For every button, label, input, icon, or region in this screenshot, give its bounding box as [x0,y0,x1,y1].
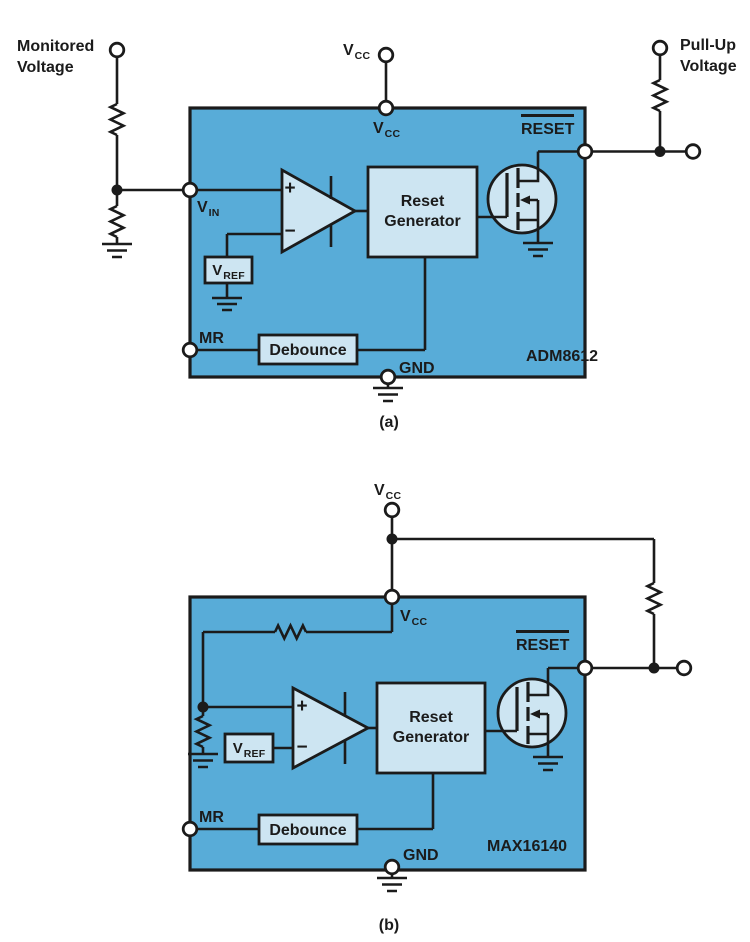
junction-dot-b-vcc [387,534,398,545]
comparator-minus-label-a: − [282,224,298,240]
caption-a: (a) [354,413,424,432]
terminal-pullup-voltage [653,41,667,55]
vref-b-main: V [233,740,243,757]
reset-generator-label-b: Reset Generator [377,708,485,748]
monitored-voltage-line1: Monitored [17,36,94,57]
chip-name-a: ADM8612 [526,347,598,366]
pull-up-voltage-label: Pull-Up Voltage [680,35,737,77]
vin-pin-a-sub: IN [209,207,220,219]
pull-up-voltage-line1: Pull-Up [680,35,737,56]
pin-vcc-b [385,590,399,604]
resistor-divider-top-a [111,104,124,135]
vcc-supply-b-main: V [374,482,385,499]
resistor-divider-bottom-a [111,206,124,237]
reset-pin-a-text: RESET [521,114,574,139]
vcc-supply-label-b: VCC [374,481,401,502]
junction-dot-a-reset [655,146,666,157]
reset-generator-b-line2: Generator [377,728,485,748]
debounce-label-a: Debounce [259,341,357,360]
monitored-voltage-label: Monitored Voltage [17,36,94,78]
pin-gnd-a [381,370,395,384]
vref-label-b: VREF [225,739,273,760]
pin-mr-b [183,822,197,836]
vref-b-sub: REF [244,748,266,760]
pull-up-voltage-line2: Voltage [680,56,737,77]
terminal-vcc-b [385,503,399,517]
vcc-pin-b-sub: CC [412,616,428,628]
vcc-supply-a-sub: CC [355,50,371,62]
comparator-minus-label-b: − [294,740,310,756]
reset-pin-b-text: RESET [516,630,569,655]
vcc-pin-a-sub: CC [385,128,401,140]
reset-generator-a-line2: Generator [368,212,477,232]
resistor-pullup-b [648,583,661,614]
comparator-plus-label-b: + [294,699,310,715]
pin-vin-a [183,183,197,197]
terminal-reset-out-b [677,661,691,675]
reset-pin-label-b: RESET [516,630,569,655]
gnd-pin-label-a: GND [399,359,435,378]
reset-pin-label-a: RESET [521,114,574,139]
caption-b: (b) [354,916,424,935]
vcc-pin-b-main: V [400,608,411,625]
terminal-reset-out-a [686,145,700,159]
junction-dot-a-divider [112,185,123,196]
junction-dot-b-divider [198,702,209,713]
vcc-pin-a-main: V [373,120,384,137]
mr-pin-label-b: MR [199,808,224,827]
circuit-svg [0,0,750,942]
ground-icon-a-divider [102,244,132,257]
monitored-voltage-line2: Voltage [17,57,94,78]
vcc-supply-label-a: VCC [343,41,370,62]
vref-a-sub: REF [223,270,245,282]
vin-pin-label-a: VIN [197,198,220,219]
pin-gnd-b [385,860,399,874]
vcc-pin-label-b: VCC [400,607,427,628]
vcc-pin-label-a: VCC [373,119,400,140]
ground-icon-a-gnd [373,388,403,401]
vin-pin-a-main: V [197,199,208,216]
reset-generator-label-a: Reset Generator [368,192,477,232]
junction-dot-b-reset [649,663,660,674]
ground-icon-b-gnd [377,878,407,891]
resistor-pullup-a [654,80,667,111]
pin-reset-b [578,661,592,675]
pin-reset-a [578,145,592,159]
vcc-supply-a-main: V [343,42,354,59]
terminal-vcc-a [379,48,393,62]
vref-a-main: V [212,262,222,279]
reset-generator-a-line1: Reset [368,192,477,212]
gnd-pin-label-b: GND [403,846,439,865]
terminal-monitored-voltage [110,43,124,57]
vref-label-a: VREF [205,261,252,282]
circuit-figure: Monitored Voltage VCC Pull-Up Voltage VC… [0,0,750,942]
chip-name-b: MAX16140 [487,837,567,856]
pin-vcc-a [379,101,393,115]
pin-mr-a [183,343,197,357]
vcc-supply-b-sub: CC [386,490,402,502]
comparator-plus-label-a: + [282,181,298,197]
debounce-label-b: Debounce [259,821,357,840]
reset-generator-b-line1: Reset [377,708,485,728]
mr-pin-label-a: MR [199,329,224,348]
